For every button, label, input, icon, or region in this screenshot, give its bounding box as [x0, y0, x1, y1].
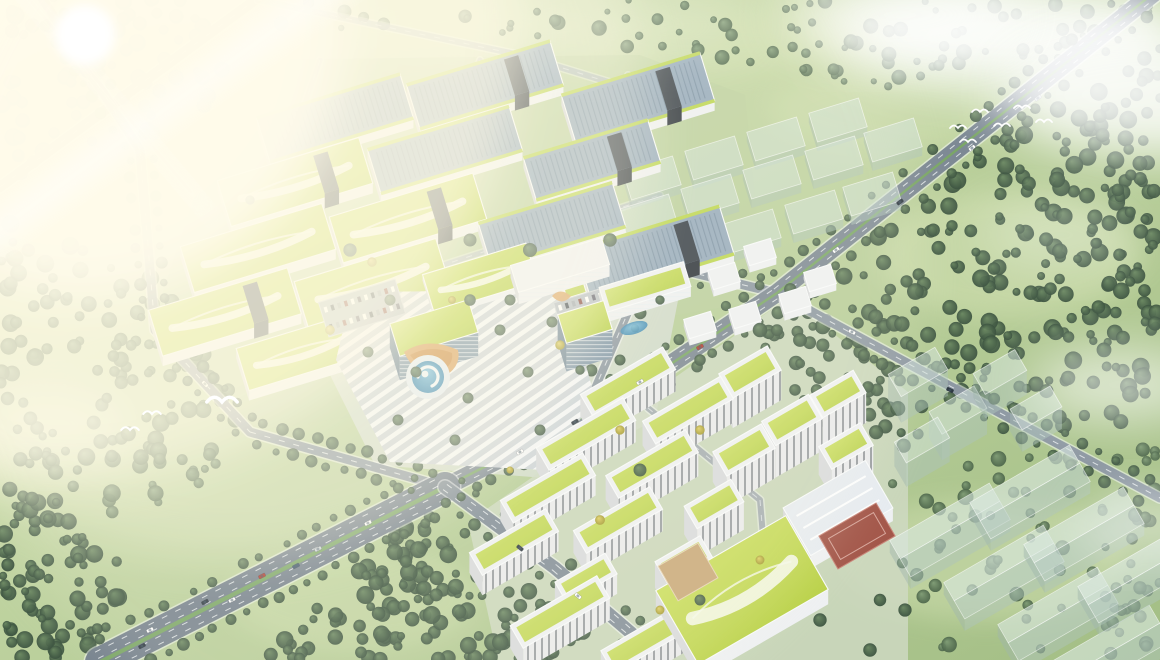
- aerial-rendering: [0, 0, 1160, 660]
- sun-flare: [0, 0, 920, 660]
- cloud: [980, 205, 1140, 265]
- aerial-render-canvas: [0, 0, 1160, 660]
